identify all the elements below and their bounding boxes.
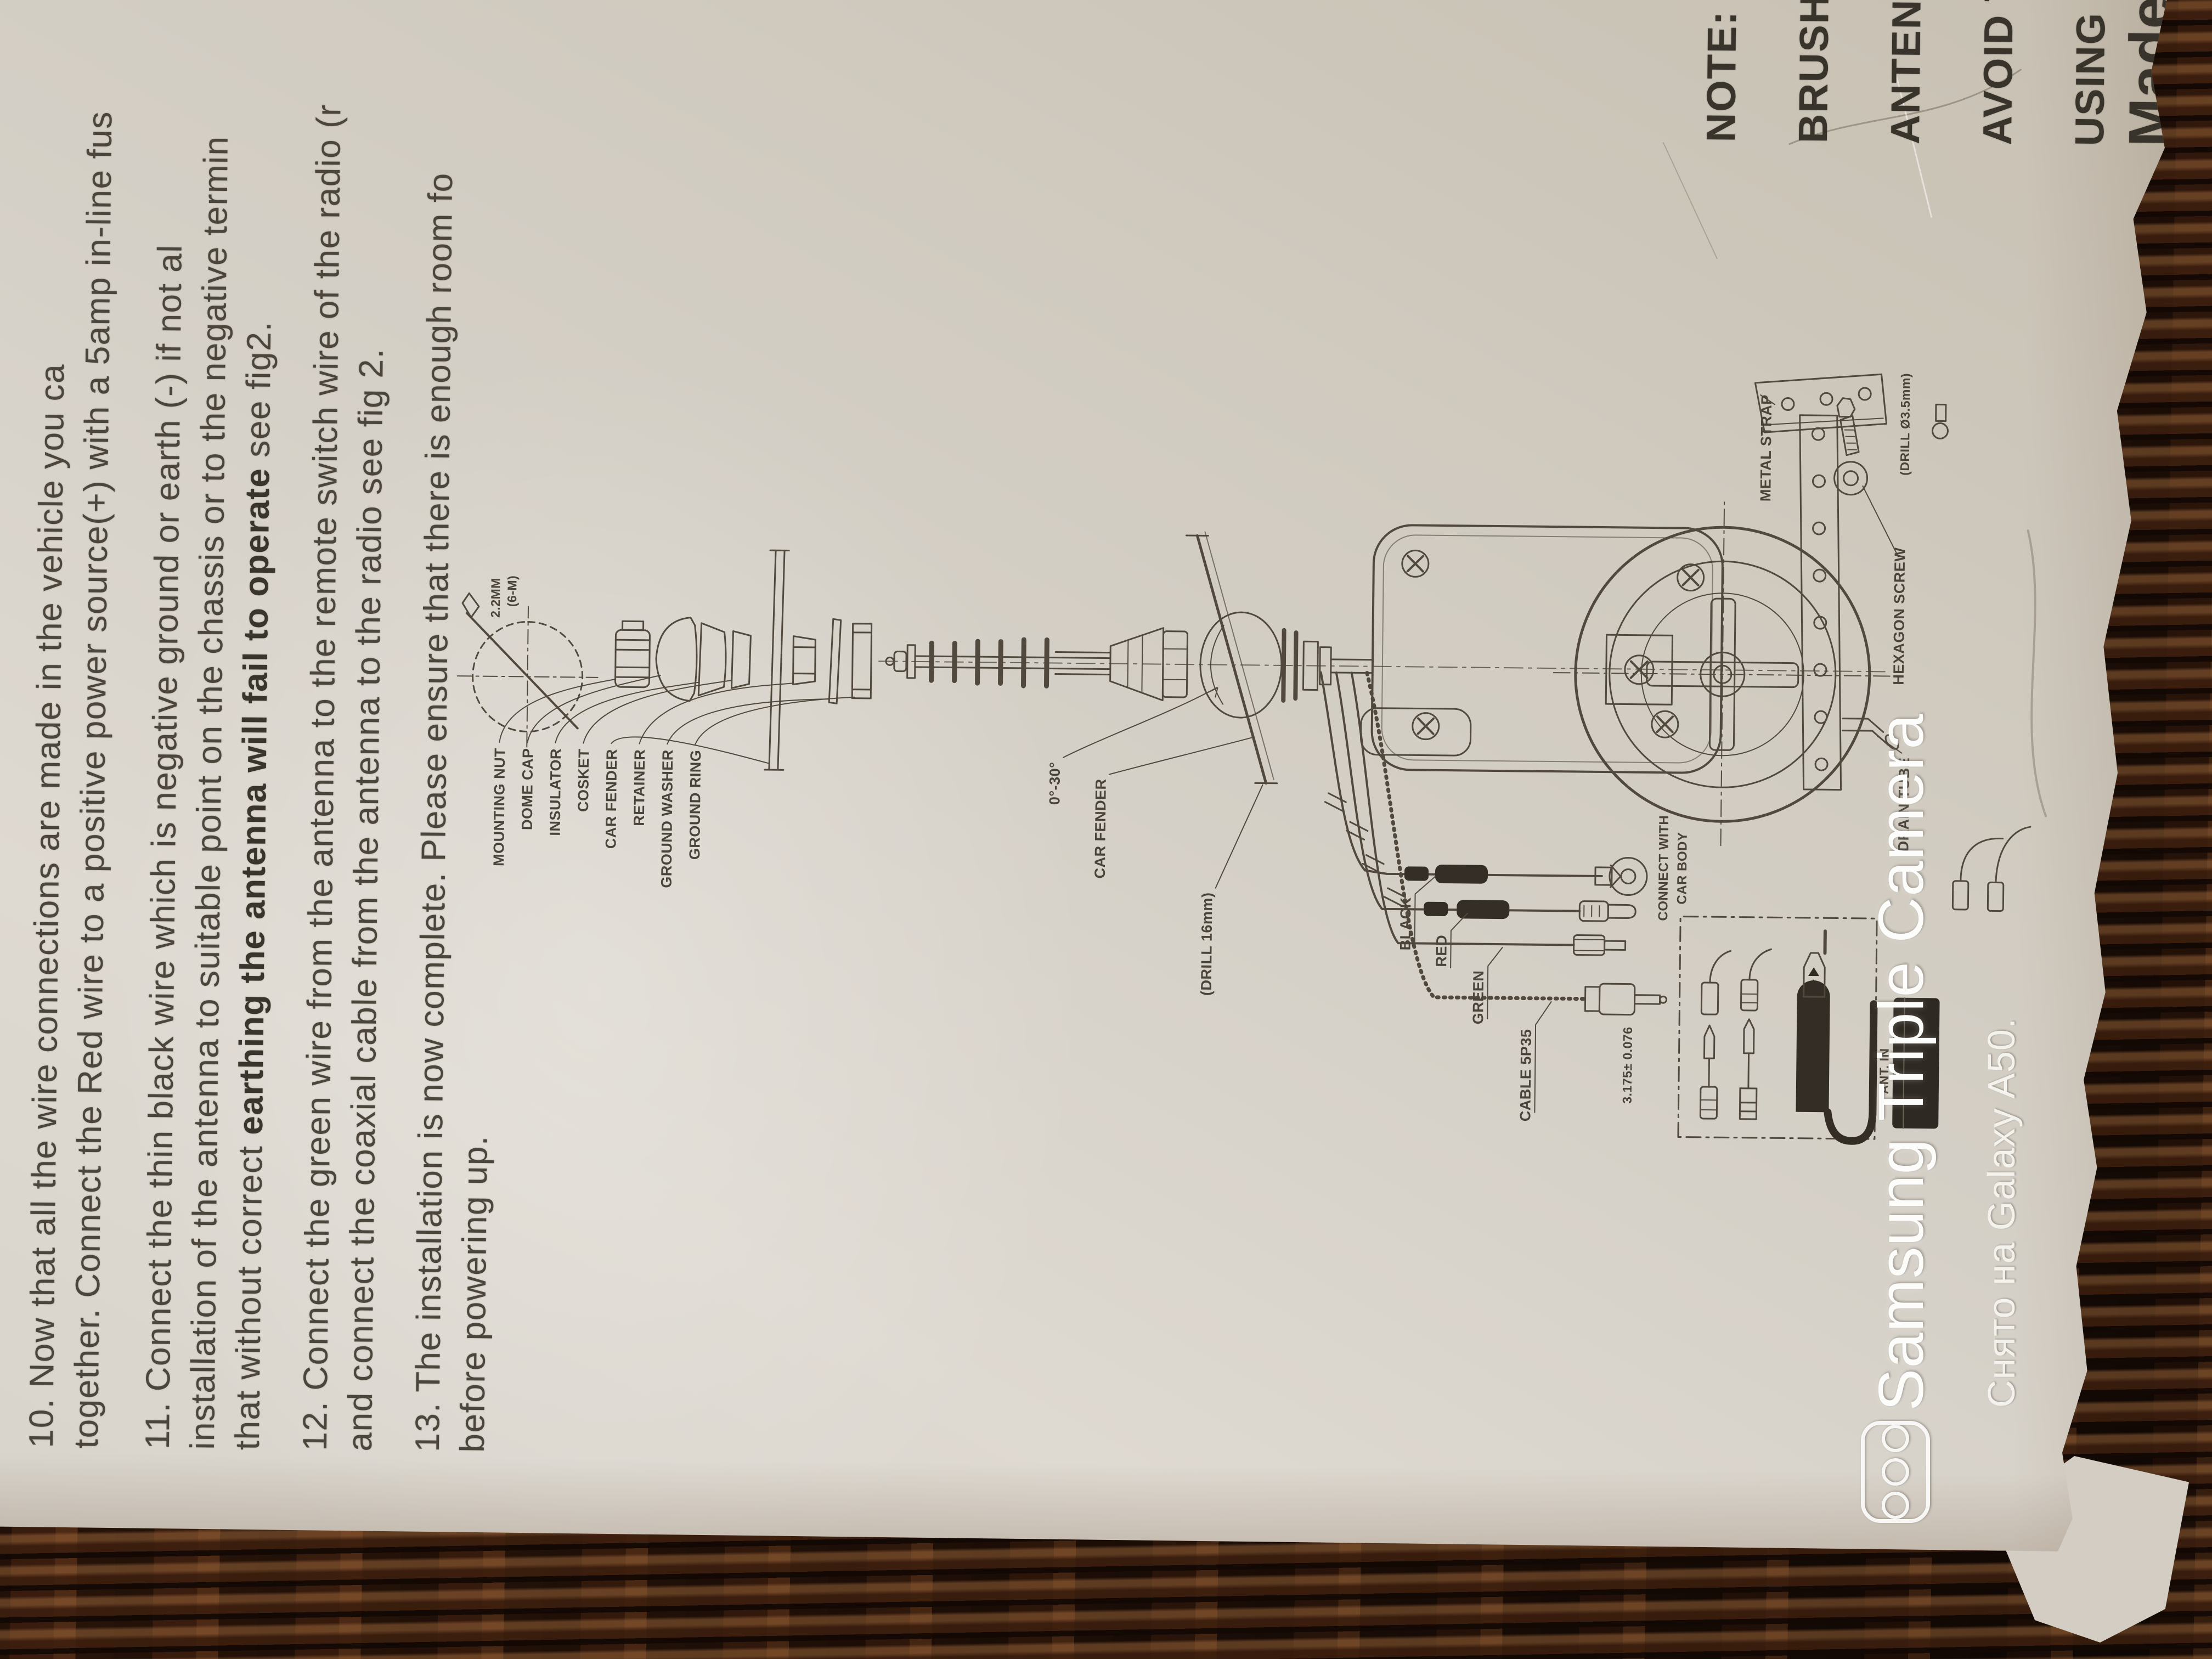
label-gasket: COSKET (575, 748, 592, 812)
triple-camera-icon (1861, 1421, 1930, 1523)
extra-connectors (1953, 826, 2030, 911)
black-wire-label: BLACK (1397, 897, 1414, 950)
camera-lens-icon (1882, 1492, 1909, 1519)
made-in-label: Made (2117, 0, 2185, 147)
note-line-brush: BRUSH (1790, 0, 1838, 143)
camera-lens-icon (1882, 1425, 1909, 1452)
red-wire-label: RED (1433, 935, 1450, 967)
car-body-label: CAR BODY (1674, 832, 1690, 904)
watermark-title: Samsung Triple Camera (1864, 713, 1938, 1411)
metal-strap-label: METAL STRAP (1757, 394, 1775, 501)
instruction-sheet-paper: 10. Now that all the wire connections ar… (0, 0, 2181, 1553)
label-ground-washer: GROUND WASHER (658, 749, 676, 888)
car-fender-plate (765, 550, 789, 770)
tolerance-label: 3.175± 0.076 (1620, 1026, 1635, 1103)
label-car-fender-part: CAR FENDER (602, 749, 620, 849)
antenna-plug (1585, 984, 1667, 1015)
hole-note-label: (6-M) (505, 575, 520, 607)
inline-connector (1435, 865, 1488, 884)
label-mounting-nut: MOUNTING NUT (490, 748, 508, 866)
ground-washer-part (829, 619, 841, 703)
note-line-antenna: ANTENN (1882, 0, 1930, 144)
note-line-avoid: AVOID T (1974, 0, 2022, 145)
label-dome-cap: DOME CAP (519, 748, 537, 830)
label-insulator: INSULATOR (547, 748, 565, 836)
hexagon-screw (1834, 398, 1868, 495)
label-ground-ring: GROUND RING (686, 750, 704, 860)
watermark-subtitle: Снято на Galaxy A50. (1979, 1018, 2023, 1408)
connector-details (1700, 930, 1875, 1141)
housing-screws (1401, 550, 1705, 742)
drill-note-label: (DRILL Ø3.5mm) (1898, 373, 1913, 476)
photo-background-carpet: 10. Now that all the wire connections ar… (0, 0, 2212, 1659)
retainer-part (793, 636, 816, 685)
spade-connector (1573, 935, 1625, 955)
bullet-connector (1579, 901, 1635, 922)
note-heading: NOTE: (1697, 10, 1746, 143)
label-retainer: RETAINER (631, 749, 648, 826)
hole-size-label: 2.2MM (488, 578, 503, 618)
rotated-photo-canvas: 10. Now that all the wire connections ar… (0, 0, 2212, 1659)
antenna-installation-diagram: 2.2MM (6-M) MOUNTING NUT DOME CAP INSULA… (0, 0, 2181, 1553)
car-fender-label: CAR FENDER (1092, 778, 1109, 878)
drill-fender-label: (DRILL 16mm) (1198, 892, 1216, 996)
note-line-using: USING E (2066, 0, 2114, 146)
angle-label: 0°-30° (1046, 761, 1063, 805)
green-wire-label: GREEN (1470, 970, 1487, 1025)
connect-with-label: CONNECT WITH (1656, 815, 1672, 921)
gasket-part (731, 631, 751, 688)
camera-lens-icon (1882, 1458, 1909, 1486)
hexagon-screw-label: HEXAGON SCREW (1891, 547, 1909, 685)
cable-label: CABLE 5P35 (1517, 1029, 1534, 1121)
ground-ring-part (852, 624, 871, 698)
fender-sheet-line (1195, 535, 1269, 783)
